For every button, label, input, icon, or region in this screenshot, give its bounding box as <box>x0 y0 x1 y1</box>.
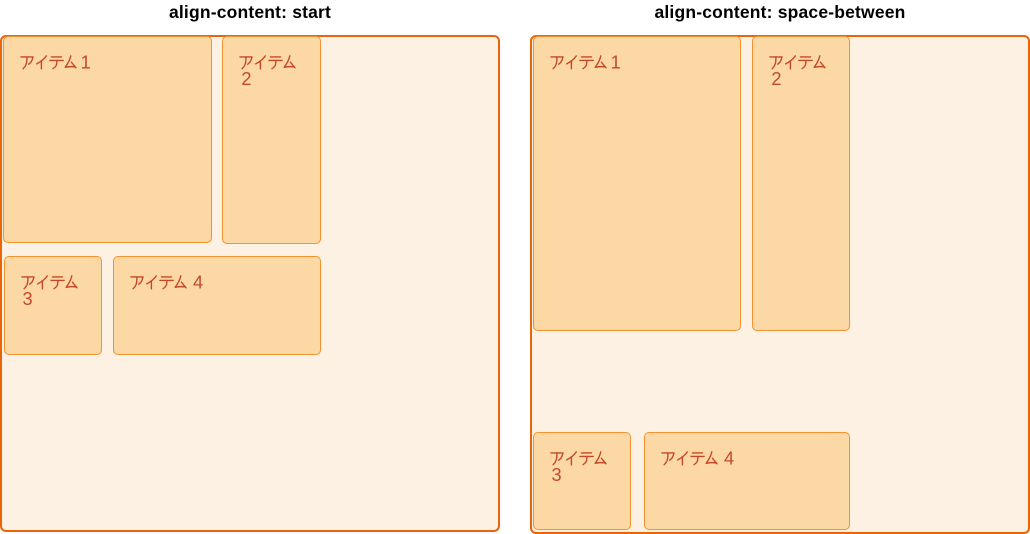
svg-text:1: 1 <box>81 53 91 73</box>
svg-text:4: 4 <box>723 448 733 468</box>
svg-text:2: 2 <box>771 69 781 89</box>
svg-text:1: 1 <box>611 53 621 73</box>
svg-text:3: 3 <box>552 465 562 485</box>
svg-text:3: 3 <box>22 289 32 309</box>
svg-text:4: 4 <box>193 272 203 292</box>
svg-text:2: 2 <box>241 69 251 89</box>
